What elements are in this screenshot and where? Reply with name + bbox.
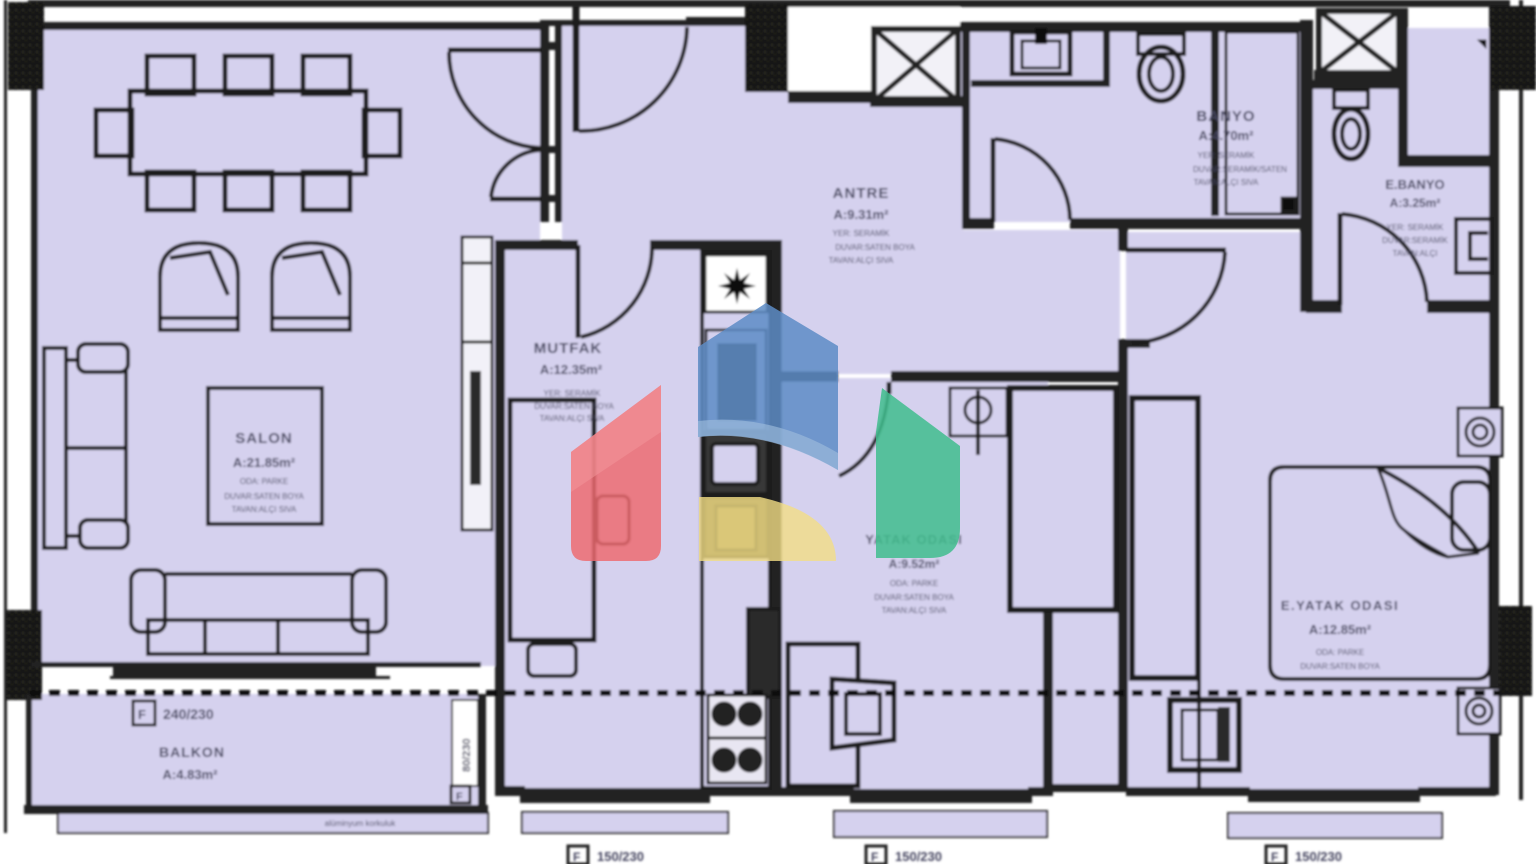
svg-text:F: F	[138, 707, 146, 722]
svg-text:80/230: 80/230	[461, 738, 473, 772]
svg-text:YER: SERAMİK: YER: SERAMİK	[544, 389, 602, 398]
svg-text:A:9.31m²: A:9.31m²	[834, 207, 890, 222]
svg-text:DUVAR:SATEN BOYA: DUVAR:SATEN BOYA	[874, 593, 954, 602]
svg-text:DUVAR:SATEN BOYA: DUVAR:SATEN BOYA	[835, 243, 915, 252]
svg-text:MUTFAK: MUTFAK	[534, 340, 603, 357]
svg-text:YER: SERAMİK: YER: SERAMİK	[833, 229, 891, 238]
svg-text:DUVAR:SATEN BOYA: DUVAR:SATEN BOYA	[534, 402, 614, 411]
svg-text:A:3.25m²: A:3.25m²	[1390, 196, 1441, 210]
svg-text:YER: SERAMİK: YER: SERAMİK	[1198, 151, 1256, 160]
svg-text:DUVAR:SATEN BOYA: DUVAR:SATEN BOYA	[1300, 662, 1380, 671]
svg-text:DUVAR:SERAMİK: DUVAR:SERAMİK	[1382, 236, 1448, 245]
svg-text:F: F	[573, 850, 580, 864]
svg-text:A:9.52m²: A:9.52m²	[889, 557, 940, 571]
svg-text:150/230: 150/230	[895, 849, 942, 864]
svg-text:150/230: 150/230	[1295, 849, 1342, 864]
svg-text:BALKON: BALKON	[159, 744, 225, 760]
svg-text:240/230: 240/230	[163, 706, 214, 722]
svg-text:A:4.70m²: A:4.70m²	[1199, 128, 1255, 143]
svg-text:BANYO: BANYO	[1196, 108, 1255, 125]
svg-text:150/230: 150/230	[597, 849, 644, 864]
svg-text:TAVAN:ALÇI: TAVAN:ALÇI	[1393, 249, 1438, 258]
svg-text:alüminyum korkuluk: alüminyum korkuluk	[325, 819, 397, 828]
svg-text:E.BANYO: E.BANYO	[1385, 177, 1444, 192]
svg-text:A:12.35m²: A:12.35m²	[540, 362, 603, 377]
svg-text:A:21.85m²: A:21.85m²	[233, 455, 296, 470]
svg-text:F: F	[1271, 850, 1278, 864]
svg-text:ODA: PARKE: ODA: PARKE	[240, 477, 288, 486]
svg-text:SALON: SALON	[235, 430, 293, 447]
svg-text:DUVAR:SERAMİK/SATEN: DUVAR:SERAMİK/SATEN	[1193, 165, 1287, 174]
svg-text:A:12.85m²: A:12.85m²	[1309, 622, 1372, 637]
svg-text:F: F	[871, 850, 878, 864]
svg-text:DUVAR:SATEN BOYA: DUVAR:SATEN BOYA	[224, 492, 304, 501]
svg-text:TAVAN:ALÇI SIVA: TAVAN:ALÇI SIVA	[540, 414, 605, 423]
svg-text:TAVAN:ALÇI SIVA: TAVAN:ALÇI SIVA	[1194, 178, 1259, 187]
svg-text:A:4.83m²: A:4.83m²	[163, 767, 219, 782]
svg-text:F: F	[456, 791, 463, 803]
svg-text:YER: SERAMİK: YER: SERAMİK	[1387, 223, 1445, 232]
svg-text:TAVAN:ALÇI SIVA: TAVAN:ALÇI SIVA	[232, 505, 297, 514]
svg-text:ODA: PARKE: ODA: PARKE	[1316, 648, 1364, 657]
svg-text:ODA: PARKE: ODA: PARKE	[890, 579, 938, 588]
svg-text:TAVAN:ALÇI SIVA: TAVAN:ALÇI SIVA	[829, 256, 894, 265]
svg-text:TAVAN:ALÇI SIVA: TAVAN:ALÇI SIVA	[882, 606, 947, 615]
svg-text:ANTRE: ANTRE	[833, 185, 890, 202]
svg-text:E.YATAK ODASI: E.YATAK ODASI	[1281, 598, 1399, 613]
